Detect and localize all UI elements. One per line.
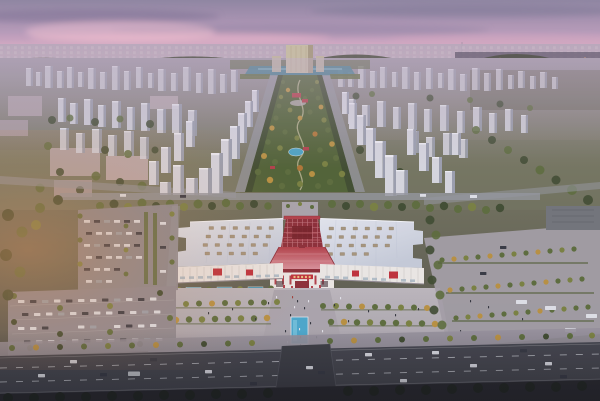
atmosphere-overlays [0,0,600,401]
aerial-architectural-rendering [0,0,600,401]
color-cast [0,0,600,401]
rendering-canvas [0,0,600,401]
